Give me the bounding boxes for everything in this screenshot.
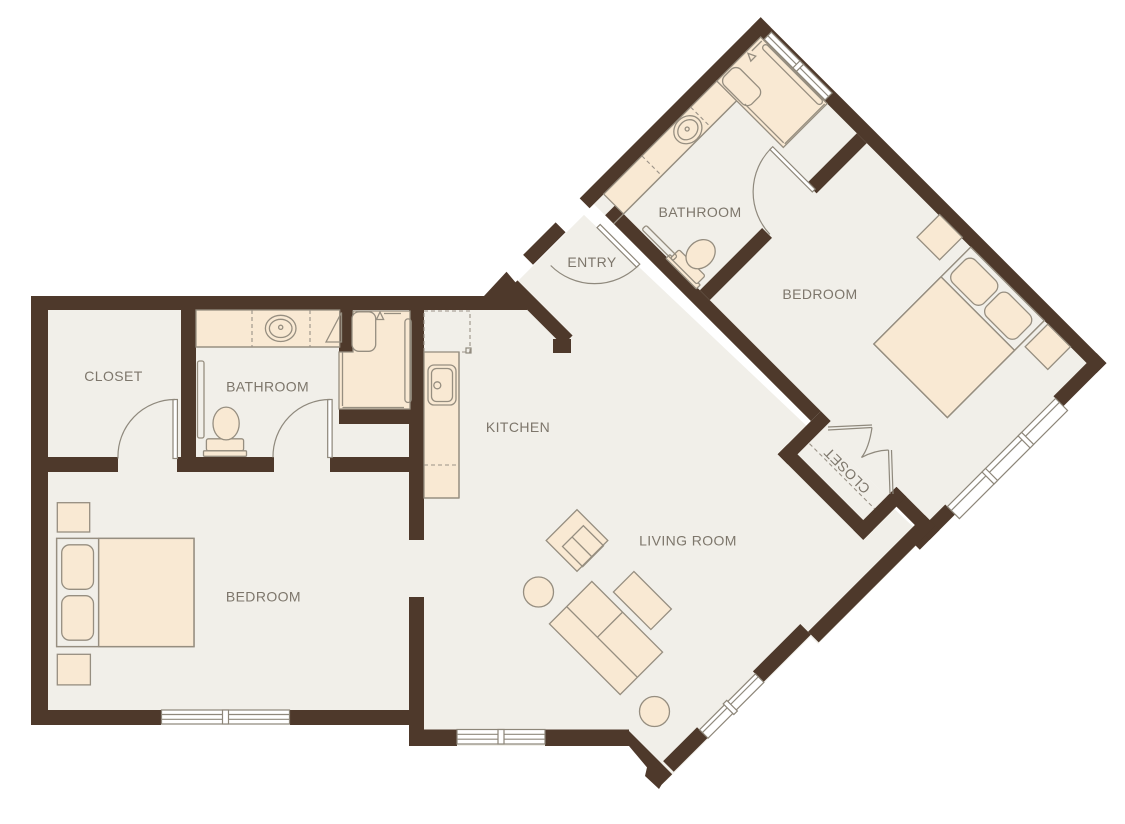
svg-text:KITCHEN: KITCHEN	[486, 419, 550, 435]
svg-text:BATHROOM: BATHROOM	[226, 379, 309, 395]
svg-text:BEDROOM: BEDROOM	[226, 589, 301, 605]
svg-text:BATHROOM: BATHROOM	[658, 204, 741, 220]
svg-text:BEDROOM: BEDROOM	[782, 286, 857, 302]
svg-text:LIVING ROOM: LIVING ROOM	[639, 533, 737, 549]
svg-text:CLOSET: CLOSET	[84, 368, 142, 384]
svg-text:ENTRY: ENTRY	[567, 254, 616, 270]
